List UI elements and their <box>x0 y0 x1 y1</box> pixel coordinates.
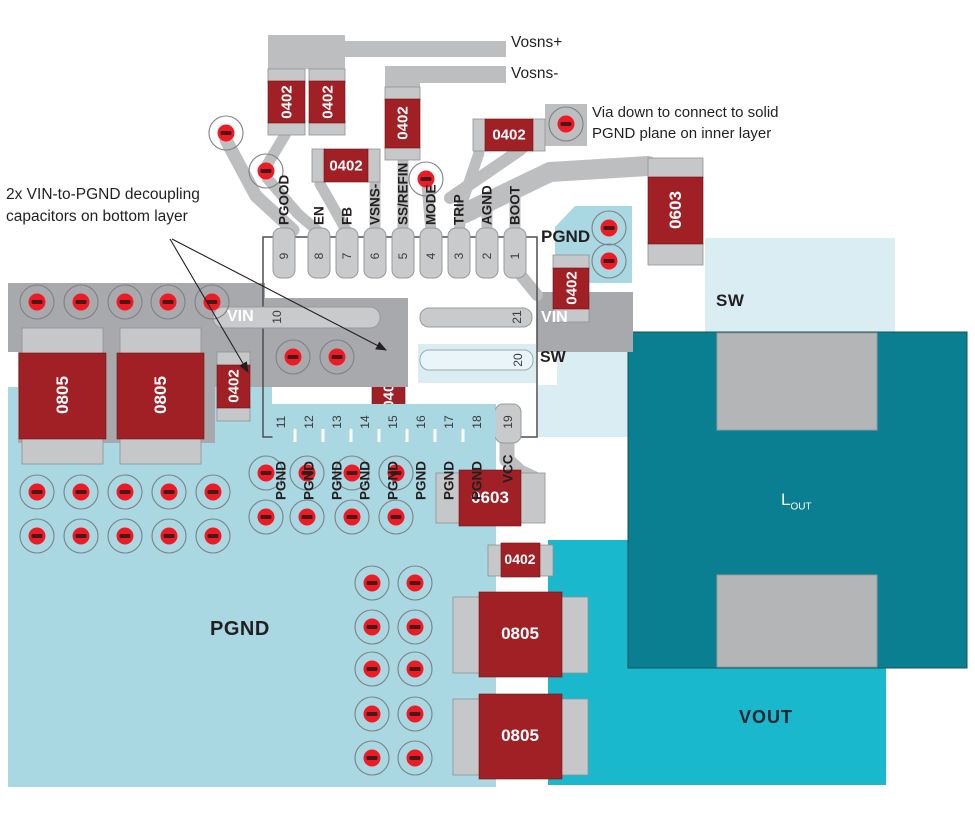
component-0402-g: 0402 <box>488 543 553 577</box>
svg-text:FB: FB <box>340 207 355 225</box>
svg-text:0402: 0402 <box>563 271 580 304</box>
svg-text:8: 8 <box>312 252 326 259</box>
svg-text:9: 9 <box>277 252 291 259</box>
svg-text:0805: 0805 <box>151 376 170 414</box>
svg-text:18: 18 <box>470 415 484 429</box>
svg-text:PGND: PGND <box>414 461 429 500</box>
component-0603-boot: 0603 <box>648 158 703 265</box>
svg-text:19: 19 <box>501 415 515 429</box>
lout-label: LOUT <box>781 489 812 514</box>
svg-text:1: 1 <box>508 252 522 259</box>
svg-text:0402: 0402 <box>504 551 535 567</box>
pgnd-main-label: PGND <box>210 616 270 643</box>
svg-text:17: 17 <box>442 415 456 429</box>
vout-label: VOUT <box>739 705 793 729</box>
svg-text:0805: 0805 <box>501 624 539 643</box>
svg-text:16: 16 <box>414 415 428 429</box>
svg-text:0402: 0402 <box>319 85 336 118</box>
svg-text:PGND: PGND <box>274 461 289 500</box>
svg-text:EN: EN <box>312 206 327 225</box>
component-0402-e: 0402 <box>473 119 545 151</box>
via-note: Via down to connect to solidPGND plane o… <box>592 102 779 144</box>
svg-text:VCC: VCC <box>501 454 516 483</box>
svg-text:7: 7 <box>340 252 354 259</box>
svg-text:PGND: PGND <box>386 461 401 500</box>
component-0402-d: 0402 <box>312 149 380 182</box>
svg-text:0402: 0402 <box>329 157 362 174</box>
sw-large-label: SW <box>716 290 744 313</box>
svg-text:3: 3 <box>452 252 466 259</box>
svg-text:TRIP: TRIP <box>452 194 467 225</box>
svg-text:20: 20 <box>511 353 525 367</box>
decoupling-note: 2x VIN-to-PGND decouplingcapacitors on b… <box>6 184 200 228</box>
svg-text:0402: 0402 <box>394 106 411 139</box>
vin-right-label: VIN <box>541 307 568 329</box>
svg-text:0805: 0805 <box>53 376 72 414</box>
decoupling-note-line2: capacitors on bottom layer <box>6 208 188 225</box>
svg-text:PGND: PGND <box>330 461 345 500</box>
vosns-plus-label: Vosns+ <box>511 33 562 54</box>
via-note-line2: PGND plane on inner layer <box>592 125 771 142</box>
svg-text:12: 12 <box>302 415 316 429</box>
inductor-pad-top <box>717 333 877 430</box>
svg-text:11: 11 <box>274 415 288 428</box>
svg-text:0402: 0402 <box>225 369 242 402</box>
svg-text:PGOOD: PGOOD <box>277 174 292 225</box>
via-note-line1: Via down to connect to solid <box>592 104 779 121</box>
pcb-layout-svg: 0402 <box>0 0 975 820</box>
svg-text:PGND: PGND <box>358 461 373 500</box>
svg-text:VSNS-: VSNS- <box>368 184 383 225</box>
svg-text:BOOT: BOOT <box>508 185 523 225</box>
vin-left-label: VIN <box>227 306 254 328</box>
svg-text:SS/REFIN: SS/REFIN <box>396 163 411 225</box>
svg-text:AGND: AGND <box>480 185 495 225</box>
svg-text:0402: 0402 <box>492 126 525 143</box>
region-sw-large <box>705 238 895 332</box>
svg-text:13: 13 <box>330 415 344 429</box>
svg-text:6: 6 <box>368 252 382 259</box>
svg-text:15: 15 <box>386 415 400 429</box>
svg-text:0603: 0603 <box>666 191 685 229</box>
svg-text:PGND: PGND <box>470 461 485 500</box>
svg-text:5: 5 <box>396 252 410 259</box>
vosns-minus-label: Vosns- <box>511 64 558 85</box>
svg-text:4: 4 <box>424 252 438 259</box>
component-0805-in1: 0805 <box>19 328 106 464</box>
svg-text:MODE: MODE <box>424 185 439 226</box>
component-0402-a: 0402 <box>268 69 305 135</box>
component-0805-in2: 0805 <box>117 328 204 464</box>
svg-text:0402: 0402 <box>278 85 295 118</box>
component-0402-b: 0402 <box>309 69 345 135</box>
svg-text:0805: 0805 <box>501 726 539 745</box>
svg-text:21: 21 <box>510 310 524 324</box>
decoupling-note-line1: 2x VIN-to-PGND decoupling <box>6 186 200 203</box>
sw-small-label: SW <box>540 347 566 369</box>
component-0402-c: 0402 <box>385 87 420 160</box>
component-0805-out1: 0805 <box>453 592 588 677</box>
pgnd-top-label: PGND <box>541 226 590 249</box>
pcb-layout-diagram: 0402 <box>0 0 975 820</box>
svg-text:PGND: PGND <box>442 461 457 500</box>
svg-text:10: 10 <box>270 310 284 324</box>
svg-text:PGND: PGND <box>302 461 317 500</box>
component-0402-bottomlayer-1: 0402 <box>217 352 250 421</box>
lout-label-sub: OUT <box>790 501 811 512</box>
component-0805-out2: 0805 <box>453 694 588 779</box>
svg-text:2: 2 <box>480 252 494 259</box>
svg-text:14: 14 <box>358 415 372 429</box>
inductor-pad-bottom <box>717 575 877 667</box>
